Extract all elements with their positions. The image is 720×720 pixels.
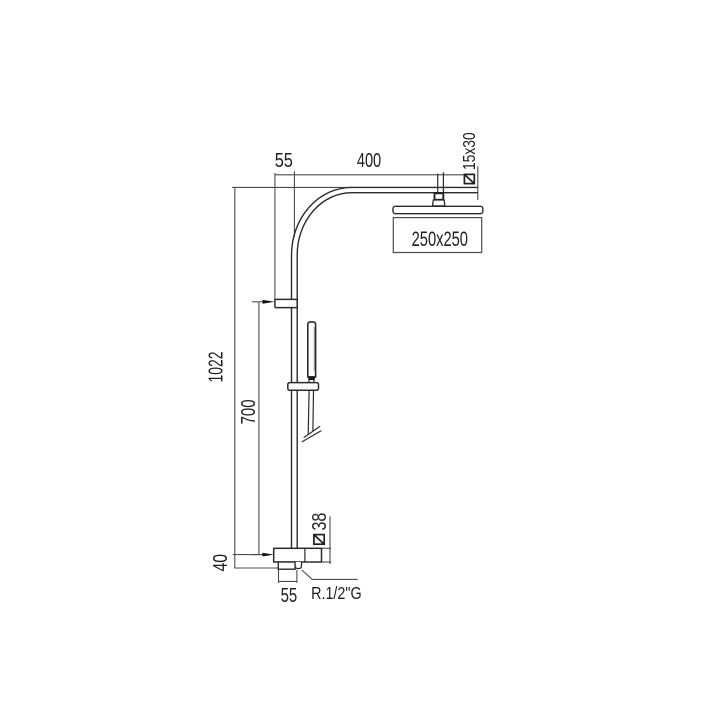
svg-text:400: 400	[357, 149, 382, 172]
svg-text:15x30: 15x30	[460, 132, 480, 170]
svg-text:40: 40	[209, 554, 231, 572]
svg-text:55: 55	[275, 148, 293, 171]
svg-text:55: 55	[281, 584, 298, 607]
svg-text:1022: 1022	[204, 351, 227, 382]
svg-text:R.1/2"G: R.1/2"G	[311, 585, 362, 603]
svg-text:38: 38	[307, 513, 330, 531]
svg-text:250x250: 250x250	[412, 226, 468, 250]
svg-text:700: 700	[237, 399, 260, 424]
